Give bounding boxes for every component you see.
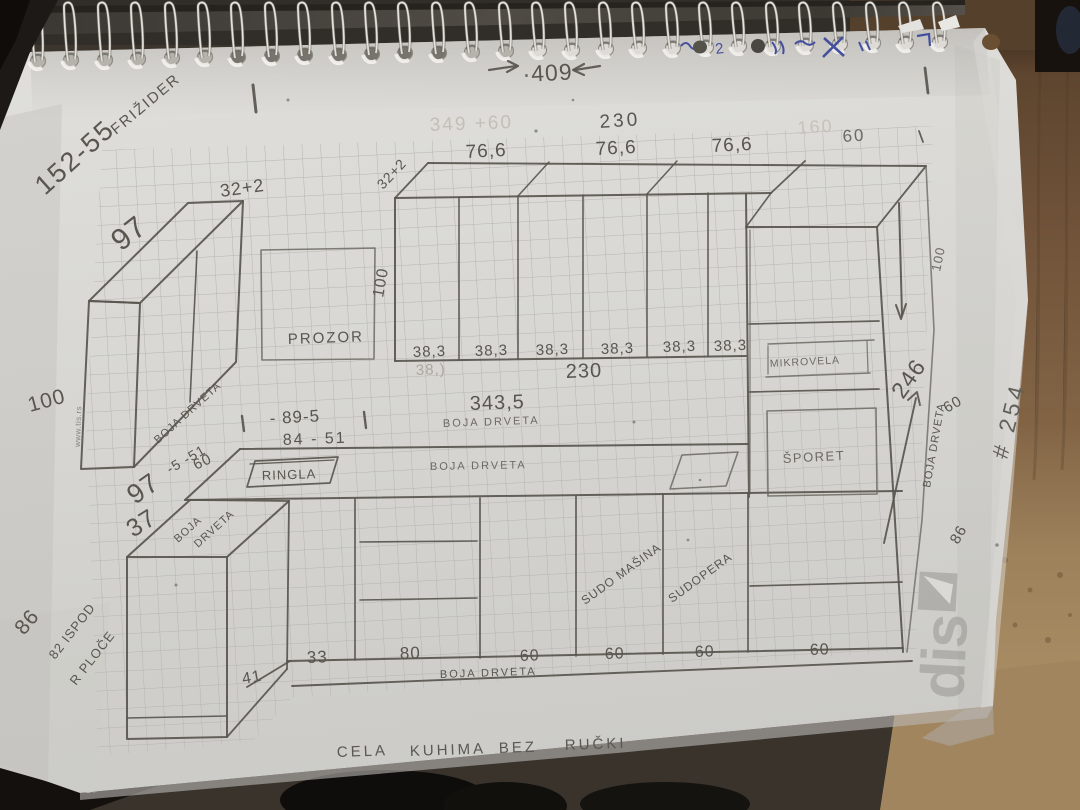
svg-text:dis: dis (908, 614, 981, 701)
svg-text:60: 60 (520, 647, 540, 665)
svg-text:76,6: 76,6 (711, 134, 753, 157)
svg-text:80: 80 (399, 643, 421, 663)
svg-text:230: 230 (565, 360, 602, 383)
svg-text:38,3: 38,3 (663, 338, 697, 356)
svg-text:76,6: 76,6 (465, 140, 507, 163)
svg-text:60: 60 (605, 645, 625, 663)
svg-text:60: 60 (695, 643, 715, 661)
svg-text:230: 230 (599, 109, 641, 133)
svg-text:160: 160 (797, 116, 834, 138)
svg-text:BOJA DRVETA: BOJA DRVETA (430, 459, 527, 473)
svg-text:41: 41 (241, 668, 263, 688)
svg-text:38,3: 38,3 (601, 340, 635, 358)
svg-text:KUHIMA: KUHIMA (410, 740, 487, 760)
svg-text:BEZ: BEZ (499, 739, 538, 757)
svg-text:349 +60: 349 +60 (429, 112, 513, 136)
svg-text:www.tis.rs: www.tis.rs (73, 406, 83, 448)
svg-text:60: 60 (810, 641, 830, 659)
svg-text:33: 33 (306, 647, 328, 667)
svg-text:38,): 38,) (416, 361, 446, 379)
svg-text:- 89-5: - 89-5 (269, 406, 320, 428)
svg-text:CELA: CELA (337, 742, 389, 761)
svg-text:84 - 51: 84 - 51 (283, 430, 347, 449)
svg-text:·409: ·409 (522, 58, 573, 87)
svg-text:38,3: 38,3 (413, 343, 447, 361)
svg-text:38,3: 38,3 (536, 341, 570, 359)
svg-text:38,3: 38,3 (475, 342, 509, 360)
svg-text:PROZOR: PROZOR (288, 328, 365, 348)
svg-text:RINGLA: RINGLA (262, 466, 317, 483)
svg-text:60: 60 (842, 125, 866, 146)
svg-text:38,3: 38,3 (714, 337, 748, 355)
svg-text:76,6: 76,6 (595, 137, 637, 160)
svg-text:343,5: 343,5 (469, 391, 525, 415)
svg-text:RUČKI: RUČKI (565, 735, 627, 754)
